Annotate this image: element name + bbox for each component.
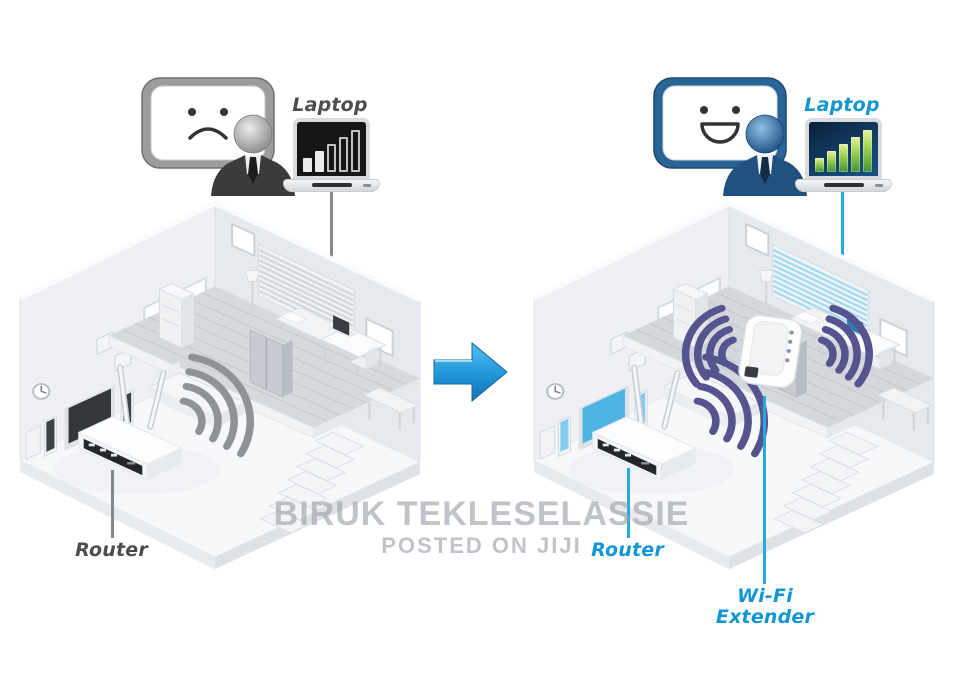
laptop-screen-signal-bars — [805, 118, 882, 180]
before-router-leader-line — [111, 470, 114, 538]
wifi-extender-before-after-diagram: Laptop — [0, 0, 963, 700]
floor-lamp — [245, 271, 259, 282]
signal-bar — [351, 130, 360, 172]
laptop-power-led — [363, 184, 371, 187]
transition-arrow-icon — [428, 334, 514, 410]
house-after-illustration — [522, 198, 946, 570]
signal-bar — [839, 144, 848, 172]
signal-bar — [815, 158, 824, 172]
speaker — [46, 418, 54, 451]
signal-bar — [851, 137, 860, 172]
extender-label-line2: Extender — [701, 607, 829, 628]
signal-bar — [339, 137, 348, 172]
laptop-trackpad — [824, 183, 864, 187]
signal-bar — [827, 151, 836, 172]
extender-label-line1: Wi-Fi — [701, 586, 829, 607]
extender-label: Wi-Fi Extender — [701, 586, 829, 628]
after-router-leader-line — [627, 468, 630, 538]
after-router-label: Router — [575, 539, 680, 561]
laptop-screen-signal-bars — [293, 118, 370, 180]
before-laptop-label: Laptop — [280, 94, 380, 116]
house-before-illustration — [8, 198, 432, 570]
laptop-weak-signal-icon — [283, 118, 380, 196]
after-laptop-label: Laptop — [792, 94, 892, 116]
floor-lamp — [759, 271, 773, 282]
signal-bar — [327, 144, 336, 172]
signal-bar — [303, 158, 312, 172]
laptop-strong-signal-icon — [795, 118, 892, 196]
signal-bar — [315, 151, 324, 172]
person-unhappy-icon — [205, 108, 295, 196]
before-router-label: Router — [59, 539, 164, 561]
person-happy-icon — [717, 108, 807, 196]
signal-bar — [863, 130, 872, 172]
laptop-power-led — [875, 184, 883, 187]
laptop-trackpad — [312, 183, 352, 187]
extender-leader-line — [763, 396, 766, 584]
speaker — [560, 418, 568, 451]
